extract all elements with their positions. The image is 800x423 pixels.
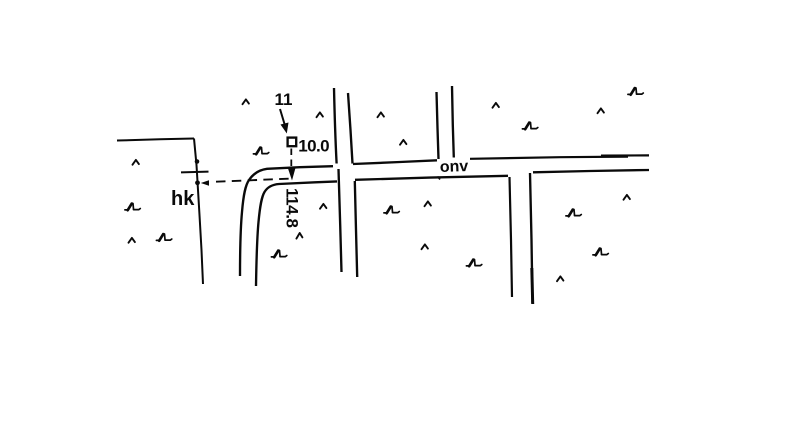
svg-text:onv: onv: [440, 158, 469, 176]
svg-text:11: 11: [275, 90, 293, 109]
svg-text:10.0: 10.0: [298, 137, 329, 156]
svg-text:hk: hk: [171, 188, 195, 210]
svg-text:114.8: 114.8: [283, 188, 302, 228]
